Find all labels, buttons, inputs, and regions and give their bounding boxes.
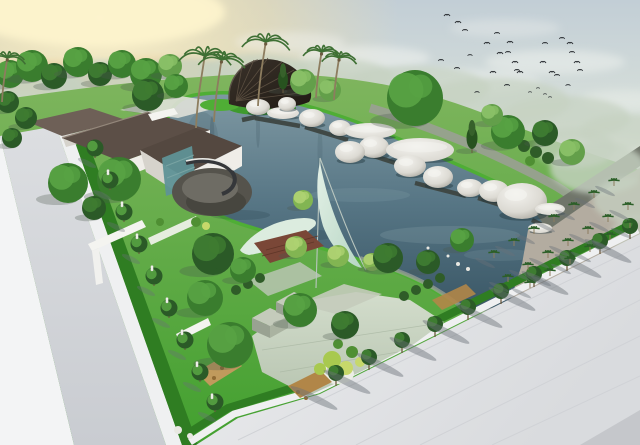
conifer-canopy: [280, 63, 286, 77]
water-reflection: [380, 226, 520, 244]
pebble-highlight: [484, 183, 498, 191]
tree-canopy: [64, 166, 81, 183]
tree-canopy: [409, 74, 433, 98]
pebble-highlight: [303, 112, 315, 118]
tree-canopy: [240, 259, 251, 270]
palm-frond: [554, 216, 560, 217]
garden-statue: [136, 234, 138, 240]
tree-canopy: [294, 238, 303, 247]
palm-frond: [570, 258, 576, 259]
pebble-highlight: [393, 142, 447, 153]
palm-frond: [534, 228, 540, 229]
pebble-highlight: [340, 144, 354, 152]
tree-canopy: [144, 82, 157, 95]
tree-canopy: [87, 141, 97, 151]
pebble-pavilion: [335, 141, 365, 163]
tree-canopy: [142, 61, 155, 74]
cloud: [485, 50, 625, 74]
shrub: [399, 291, 409, 301]
shrub: [333, 339, 343, 349]
tree-canopy: [75, 49, 88, 62]
tree-canopy: [490, 106, 499, 115]
tree-canopy: [167, 56, 177, 66]
palm-frond: [514, 240, 520, 241]
pebble-walkway: [242, 117, 256, 120]
tree-canopy: [301, 192, 309, 200]
tree-shadow: [269, 89, 288, 94]
garden-statue: [107, 170, 109, 176]
shrub: [191, 217, 201, 227]
tree-canopy: [342, 313, 354, 325]
palm-crown: [337, 58, 340, 61]
cloud: [450, 19, 560, 37]
palm-frond: [628, 204, 634, 205]
garden-statue: [151, 266, 153, 272]
palm-frond: [610, 234, 616, 235]
tree-canopy: [336, 247, 345, 256]
tree-canopy: [225, 326, 244, 345]
palm-frond: [590, 246, 596, 247]
shrub: [447, 255, 450, 258]
tree-canopy: [173, 76, 183, 86]
pebble-highlight: [399, 158, 413, 166]
tree-canopy: [569, 141, 580, 152]
palm-crown: [264, 42, 267, 45]
palm-frond: [550, 270, 556, 271]
shrub: [525, 156, 535, 166]
shrub: [202, 222, 210, 230]
pebble-highlight: [505, 188, 528, 201]
pebble-pavilion: [423, 166, 453, 188]
palm-frond: [630, 222, 636, 223]
pebble-highlight: [332, 122, 342, 128]
garden-statue: [181, 330, 183, 336]
palm-frond: [568, 240, 574, 241]
palm-frond: [608, 216, 614, 217]
aerial-park-render: [0, 0, 640, 445]
shrub: [231, 285, 241, 295]
tree-canopy: [28, 53, 41, 66]
pebble-highlight: [281, 99, 289, 104]
shrub: [466, 267, 470, 271]
shrub: [530, 146, 542, 158]
tree-canopy: [385, 245, 398, 258]
palm-frond: [494, 252, 500, 253]
palm-crown: [220, 60, 223, 63]
render-canvas: [0, 0, 640, 445]
garden-statue: [121, 202, 123, 208]
palm-frond: [528, 264, 534, 265]
palm-crown: [320, 52, 323, 55]
palm-frond: [508, 276, 514, 277]
palm-frond: [548, 252, 554, 253]
shrub: [212, 376, 216, 380]
tree-canopy: [91, 198, 101, 208]
garden-statue: [166, 298, 168, 304]
tree-canopy: [208, 236, 226, 254]
conifer-canopy: [469, 120, 476, 136]
tree-canopy: [10, 130, 18, 138]
palm-frond: [530, 282, 536, 283]
pebble-highlight: [461, 182, 473, 188]
garden-statue: [196, 362, 198, 368]
tree-canopy: [300, 71, 311, 82]
shrub: [255, 273, 265, 283]
palm-frond: [594, 192, 600, 193]
shrub: [456, 262, 460, 266]
tree-canopy: [504, 118, 518, 132]
palm-frond: [614, 180, 620, 181]
palm-frond: [588, 228, 594, 229]
tree-canopy: [24, 109, 33, 118]
shrub: [174, 426, 182, 434]
pebble-pavilion: [394, 155, 426, 177]
shrub: [411, 285, 421, 295]
tree-canopy: [6, 93, 15, 102]
tree-canopy: [119, 52, 131, 64]
tree-canopy: [296, 296, 310, 310]
shrub: [427, 247, 430, 250]
pebble-highlight: [428, 169, 442, 177]
palm-frond: [574, 204, 580, 205]
garden-statue: [211, 394, 213, 400]
shrub: [314, 363, 326, 375]
tree-canopy: [425, 252, 435, 262]
pebble-pavilion: [278, 97, 296, 111]
pebble-pavilion: [299, 109, 325, 127]
shrub: [435, 273, 445, 283]
tree-shadow: [456, 148, 477, 154]
tree-canopy: [201, 283, 216, 298]
shrub: [187, 433, 193, 439]
shrub: [423, 279, 433, 289]
tree-canopy: [459, 230, 469, 240]
shrub: [156, 218, 164, 226]
tree-canopy: [542, 122, 553, 133]
pebble-highlight: [538, 205, 562, 210]
pebble-highlight: [364, 139, 378, 147]
pebble-pavilion: [457, 179, 483, 197]
shrub: [346, 346, 358, 358]
palm-crown: [6, 58, 9, 61]
